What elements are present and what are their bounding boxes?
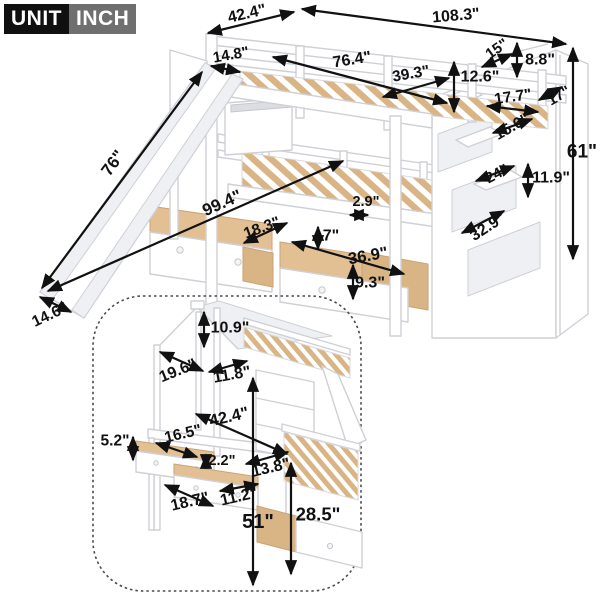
main-bed-illustration: [40, 34, 588, 338]
dim-label-loft-height: 51": [242, 511, 274, 533]
dim-label-under-bed-height: 28.5": [296, 504, 341, 525]
dim-label-roof-height: 10.9": [211, 320, 250, 337]
roof-ridge-cap: [191, 301, 204, 309]
diagram-canvas: 42.4"108.3"14.8"76.4"39.3"12.6"15"8.8"17…: [0, 0, 600, 600]
unit-label: UNIT: [4, 4, 69, 34]
inch-label: INCH: [69, 4, 136, 34]
dim-label-stair-opening: 15": [482, 35, 511, 63]
dim-label-desk-top-thickness: 2.2": [208, 453, 235, 469]
dim-label-total-length: 108.3": [432, 5, 481, 26]
drawer-side-panel: [243, 247, 273, 287]
dim-label-stair-rail-height: 8.8": [525, 52, 555, 69]
dim-label-desk-drawer-height: 5.2": [101, 433, 130, 450]
unit-badge: UNIT INCH: [4, 4, 136, 34]
dim-label-slat-gap: 2.9": [352, 194, 379, 210]
dim-label-slide-end-width: 14.6": [29, 299, 70, 330]
product-dimension-diagram: UNIT INCH: [0, 0, 600, 600]
dim-label-shelf-mid-height: 11.9": [532, 170, 570, 187]
dim-label-guardrail-height: 12.6": [461, 69, 500, 86]
front-middle-post: [390, 116, 401, 336]
dim-label-overall-height: 61": [567, 142, 597, 163]
dim-label-drawer-depth: 7": [323, 228, 339, 245]
dim-label-drawer-front-height: 9.3": [355, 275, 385, 292]
foot-cabinet: [225, 98, 292, 155]
